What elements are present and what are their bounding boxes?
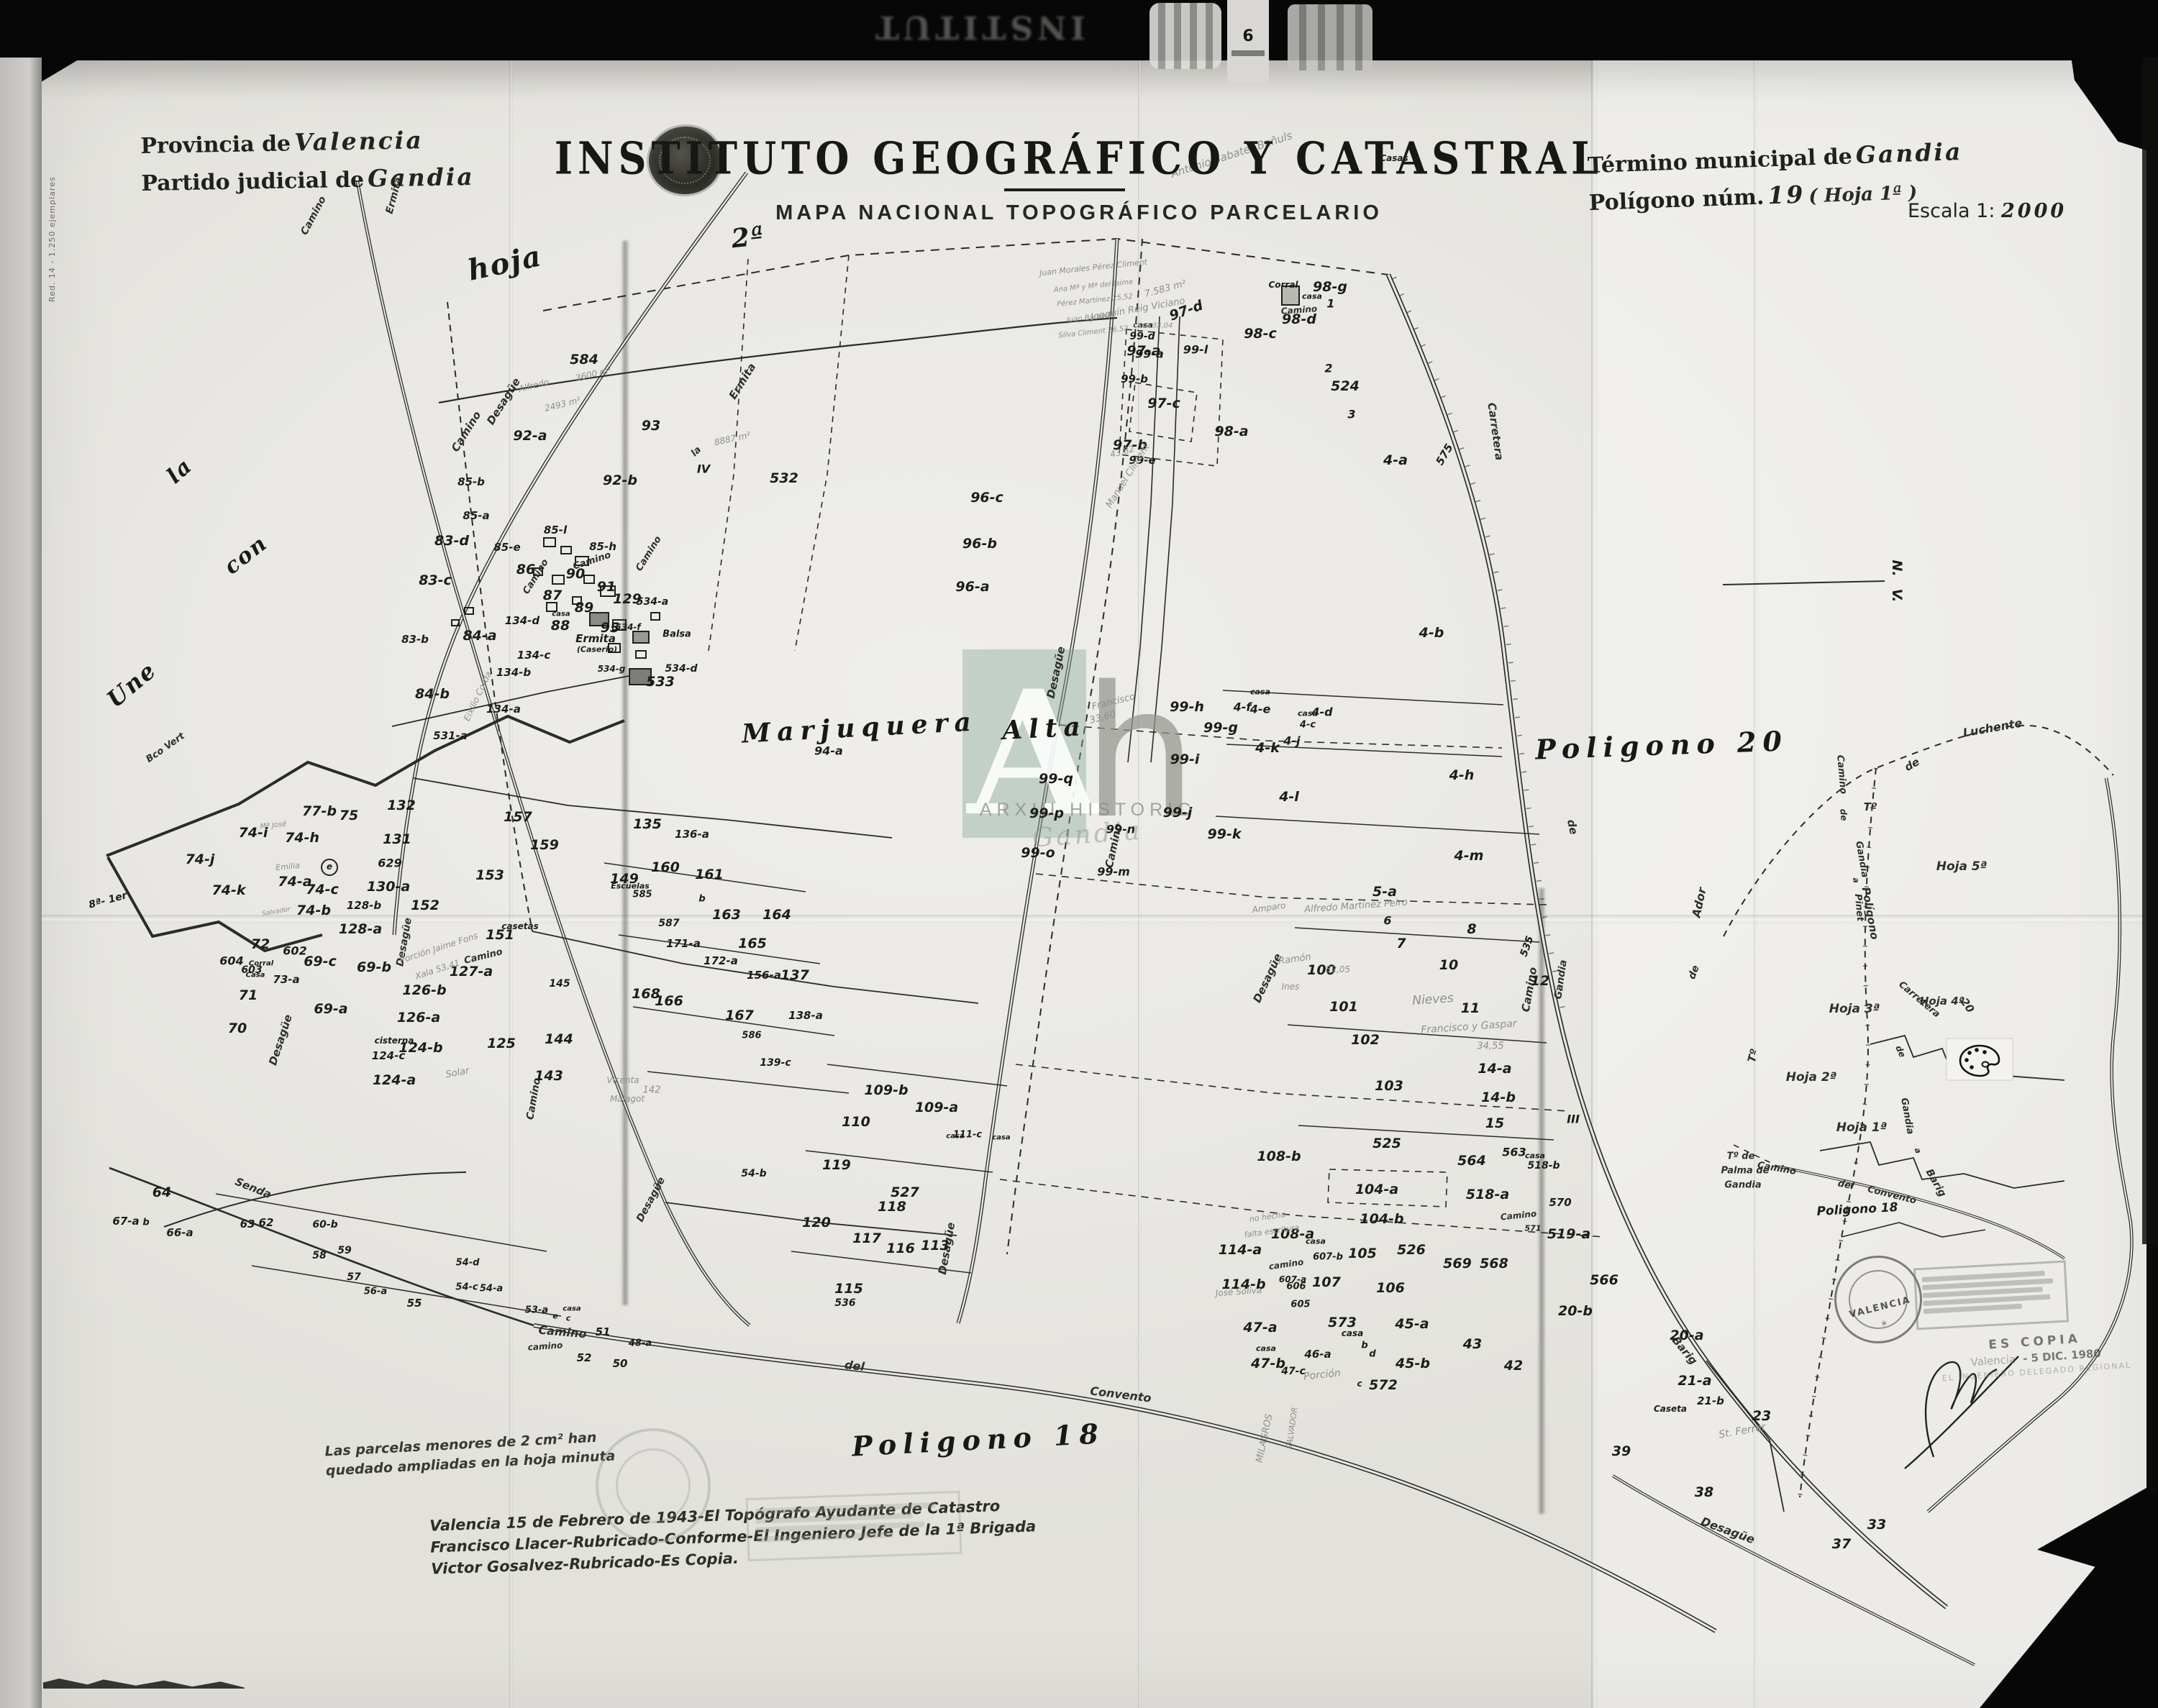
map-label: e xyxy=(321,859,338,876)
map-label: 4-c xyxy=(1300,720,1316,731)
map-label-layer: hoja2ªlaconUne8ª- 1erMarjuqueraAltaPolig… xyxy=(0,0,2158,1708)
map-label: 6 xyxy=(1383,914,1391,928)
map-label: Hoja 1ª xyxy=(1836,1120,1888,1135)
map-label: 572 xyxy=(1369,1377,1398,1393)
map-label: 84-b xyxy=(415,686,450,702)
map-label: 51 xyxy=(596,1325,611,1338)
map-label: 54-b xyxy=(741,1168,766,1179)
map-label: 57 xyxy=(347,1271,360,1283)
map-label: 4-k xyxy=(1255,740,1280,756)
map-label: 43 xyxy=(1463,1336,1482,1352)
map-label: 109-a xyxy=(915,1100,958,1115)
map-label: 4-m xyxy=(1454,848,1484,864)
map-label: 125 xyxy=(487,1036,516,1051)
map-label: 71 xyxy=(239,987,258,1003)
map-label: 138-a xyxy=(788,1009,823,1022)
registry-rect-stamp xyxy=(1913,1261,2069,1330)
map-label: casetas xyxy=(501,921,538,931)
map-label: 8 xyxy=(1467,921,1476,937)
map-label: Marjuquera xyxy=(741,706,978,749)
map-label: 136-a xyxy=(675,828,709,841)
map-label: N. xyxy=(1889,560,1905,576)
map-label: 564 xyxy=(1457,1153,1486,1169)
map-label: 37 xyxy=(1832,1536,1851,1552)
map-label: 84-a xyxy=(463,628,496,644)
map-label: 129 xyxy=(613,591,642,607)
map-label: 575 xyxy=(1433,442,1455,467)
map-label: Poligono 20 xyxy=(1534,724,1788,765)
map-label: 72 xyxy=(251,936,270,952)
map-label: 70 xyxy=(228,1020,247,1036)
map-label: 570 xyxy=(1549,1196,1571,1209)
map-label: 99-j xyxy=(1163,805,1193,821)
map-label: 519-a xyxy=(1547,1226,1590,1242)
map-label: 128-b xyxy=(347,899,381,912)
faint-circular-stamp xyxy=(596,1428,711,1543)
map-label: 171-a xyxy=(666,937,701,950)
map-label: 126-b xyxy=(402,982,446,998)
map-label: Luchente xyxy=(1962,716,2023,739)
map-label: Mª José xyxy=(260,821,287,831)
map-label: 153 xyxy=(475,867,504,883)
map-label: Camino xyxy=(538,1323,587,1341)
map-label: casa xyxy=(1302,292,1322,301)
map-label: 518-a xyxy=(1466,1187,1509,1202)
map-label: Senda xyxy=(233,1175,273,1201)
map-label: Porción xyxy=(1303,1367,1341,1382)
map-label: 8887 m² xyxy=(714,430,752,447)
map-label: 54-d xyxy=(456,1258,480,1269)
map-label: 47-b xyxy=(1251,1356,1285,1371)
map-label: III xyxy=(1567,1113,1580,1126)
sheet-note: ( Hoja 1ª ) xyxy=(1808,182,1918,207)
map-label: 161 xyxy=(695,867,724,882)
map-label: 98-a xyxy=(1214,424,1248,439)
map-label: 45-a xyxy=(1395,1316,1429,1332)
map-label: V. xyxy=(1889,589,1905,603)
map-label: 83-c xyxy=(419,572,452,588)
map-label: 77-b xyxy=(302,803,337,819)
map-label: 527 xyxy=(891,1184,919,1200)
map-label: 143 xyxy=(534,1068,563,1084)
map-label: 11 xyxy=(1461,1000,1480,1016)
map-label: 33 xyxy=(1867,1517,1886,1533)
map-label: 5-a xyxy=(1372,884,1397,900)
map-label: camino xyxy=(527,1340,563,1352)
municipality-value: Gandia xyxy=(1855,137,1963,169)
map-label: 134-c xyxy=(517,649,550,662)
polygon-label: Polígono núm. xyxy=(1588,185,1765,216)
map-label: 20-a xyxy=(1670,1328,1703,1343)
map-label: 99-h xyxy=(1170,699,1204,715)
map-label: MILAGROS xyxy=(1255,1413,1275,1463)
map-label: 74-j xyxy=(186,851,215,867)
map-label: Barig xyxy=(1923,1167,1949,1199)
map-label: Desagüe xyxy=(1044,645,1068,699)
map-label: con xyxy=(219,531,273,580)
map-label: 139-c xyxy=(760,1057,791,1069)
map-label: Desagüe xyxy=(266,1013,295,1067)
map-label: 585 xyxy=(632,890,652,900)
map-label: 7 xyxy=(1396,936,1406,951)
map-label: 566 xyxy=(1590,1272,1618,1288)
map-label: 58 xyxy=(312,1250,326,1261)
map-label: casa xyxy=(1342,1328,1363,1338)
map-label: 69-a xyxy=(314,1001,347,1017)
map-label: 92-a xyxy=(513,428,547,444)
map-label: 532 xyxy=(770,470,798,486)
map-label: 74-c xyxy=(306,882,339,898)
map-label: 104-b xyxy=(1360,1211,1403,1227)
map-label: Tº xyxy=(1864,800,1877,813)
map-label: 605 xyxy=(1290,1300,1310,1310)
map-label: 94-a xyxy=(814,744,843,758)
stamp-place: Valencia xyxy=(1970,1353,2016,1369)
map-label: 115 xyxy=(834,1281,863,1297)
map-label: Gandia xyxy=(1853,840,1870,878)
scan-edge-right xyxy=(2142,58,2158,1244)
map-label: Carretera xyxy=(1485,402,1506,462)
map-label: 54-a xyxy=(480,1284,503,1294)
map-label: 75 xyxy=(340,808,358,823)
map-label: Silva Climent 26,52 xyxy=(1058,324,1129,339)
map-label: Nieves xyxy=(1412,991,1454,1008)
map-label: Ana Mª y Mª del Jaime xyxy=(1053,278,1133,295)
map-label: 4-e xyxy=(1250,703,1271,716)
map-label: Alfredo xyxy=(517,377,550,394)
map-label: Gandia xyxy=(1898,1097,1916,1135)
map-label: 99-a xyxy=(1135,347,1164,361)
map-label: 1 xyxy=(1326,297,1334,311)
print-run-edge-note: Red. 14 - 1.250 ejemplares xyxy=(47,176,57,302)
map-label: Hoja 5ª xyxy=(1936,859,1988,874)
polygon-number: 19 xyxy=(1767,181,1806,210)
map-label: 101 xyxy=(1329,999,1358,1015)
map-label: 2ª xyxy=(730,221,767,255)
map-label: Ermita xyxy=(575,632,616,645)
map-label: 117 xyxy=(852,1230,881,1246)
map-label: 531-a xyxy=(433,729,468,742)
map-label: 55 xyxy=(407,1297,422,1310)
map-label: 606 xyxy=(1286,1282,1306,1292)
film-counter-blob xyxy=(1149,3,1221,69)
district-label: Partido judicial de xyxy=(141,168,364,196)
map-label: 89 xyxy=(575,600,593,616)
map-label: Alta xyxy=(1001,711,1088,746)
map-label: del xyxy=(844,1358,865,1374)
map-label: c xyxy=(566,1314,571,1323)
map-label: 64 xyxy=(152,1184,171,1200)
map-label: 93 xyxy=(642,418,660,434)
map-label: Hoja 3ª xyxy=(1829,1002,1880,1016)
province-label: Provincia de xyxy=(140,131,291,159)
map-label: Vicenta xyxy=(606,1075,639,1085)
map-label: 47-c xyxy=(1281,1366,1306,1377)
map-label: 66-a xyxy=(166,1226,193,1239)
map-label: 74-h xyxy=(285,830,319,846)
scale-label: Escala 1: xyxy=(1908,200,1995,222)
map-label: 4-j xyxy=(1283,734,1300,748)
map-label: 99-q xyxy=(1039,771,1073,787)
map-label: d xyxy=(1369,1349,1375,1360)
map-label: 107 xyxy=(1312,1274,1341,1290)
map-label: 587 xyxy=(658,918,679,929)
map-label: 54-c xyxy=(455,1282,478,1293)
map-series-subtitle: MAPA NACIONAL TOPOGRÁFICO PARCELARIO xyxy=(775,201,1383,225)
map-label: no hecha xyxy=(1249,1210,1286,1224)
map-label: 2493 m² xyxy=(544,395,582,414)
map-label: 96-c xyxy=(970,490,1003,506)
map-label: Desagüe xyxy=(484,375,523,427)
map-label: Gandia xyxy=(1552,959,1570,1000)
film-counter-blob xyxy=(1288,4,1372,70)
map-label: 74-b xyxy=(296,903,331,918)
map-label: a xyxy=(1913,1146,1923,1154)
map-label: 12 xyxy=(1531,973,1549,989)
map-label: Pinet xyxy=(1852,893,1865,921)
map-label: 34,55 xyxy=(1477,1041,1503,1052)
map-label: 2 xyxy=(1324,362,1332,375)
map-label: 533 xyxy=(646,674,675,690)
map-label: Emilia xyxy=(276,861,301,872)
map-label: 119 xyxy=(822,1157,851,1173)
map-label: de xyxy=(1893,1043,1908,1059)
map-label: Gandia xyxy=(1724,1180,1761,1191)
map-label: 99-k xyxy=(1208,826,1242,842)
map-label: 563 xyxy=(1502,1146,1526,1159)
map-label: 96-b xyxy=(962,536,997,552)
map-label: 110 xyxy=(842,1114,870,1130)
map-label: 118 xyxy=(878,1199,906,1215)
map-label: e xyxy=(552,1312,557,1321)
map-label: de xyxy=(1902,755,1921,774)
map-label: 103 xyxy=(1375,1078,1403,1094)
map-label: Ermita xyxy=(727,361,759,402)
map-label: la xyxy=(162,453,197,488)
map-label: 164 xyxy=(762,907,791,923)
map-label: casa xyxy=(1298,709,1318,718)
map-label: Juan Morales Pérez Climent xyxy=(1039,257,1147,278)
map-label: 99-b xyxy=(1121,373,1148,385)
municipality-label: Término municipal de xyxy=(1587,144,1852,178)
map-label: 3 xyxy=(1347,408,1355,421)
map-label: 4-f xyxy=(1234,700,1252,714)
map-label: Salvador xyxy=(262,906,291,918)
map-label: 38 xyxy=(1695,1484,1713,1500)
province-block: Provincia de Valencia Partido judicial d… xyxy=(140,125,475,206)
map-label: Francisco y Gaspar xyxy=(1421,1018,1517,1036)
map-label: Malagot xyxy=(610,1094,645,1104)
scanned-cadastral-map: A h ARXIU HISTORIC Gandia hoja2ªlaconUne… xyxy=(0,0,2158,1708)
map-label: 47-a xyxy=(1243,1320,1277,1335)
map-label: 526 xyxy=(1397,1242,1426,1258)
map-label: casa xyxy=(992,1134,1010,1142)
map-label: 69-b xyxy=(357,959,391,975)
map-label: 134-d xyxy=(505,614,539,627)
map-label: 536 xyxy=(834,1297,855,1309)
map-label: 134-b xyxy=(496,666,531,679)
map-label: 32,05 xyxy=(1326,964,1350,974)
film-frame-number: 6 xyxy=(1227,27,1269,45)
map-label: 98-d xyxy=(1282,311,1316,327)
map-label: Tº xyxy=(1745,1048,1761,1064)
map-label: casa xyxy=(563,1305,581,1313)
map-label: (Caserio) xyxy=(577,645,617,654)
map-label: hoja xyxy=(465,239,545,288)
map-label: 108-b xyxy=(1257,1148,1301,1164)
map-label: 20-b xyxy=(1558,1303,1593,1319)
map-label: camino xyxy=(1268,1257,1304,1272)
map-label: casa xyxy=(552,611,570,618)
map-label: Convento xyxy=(1089,1384,1152,1405)
map-label: 69-c xyxy=(304,954,337,969)
map-label: 172-a xyxy=(704,954,738,967)
scan-edge-left xyxy=(0,58,42,1708)
map-label: José Soliva xyxy=(1215,1285,1262,1298)
map-label: 124-a xyxy=(373,1072,416,1088)
map-label: 8ª- 1er xyxy=(88,890,129,911)
map-label: cisterna xyxy=(375,1036,414,1046)
map-label: 120 xyxy=(802,1215,831,1230)
map-label: 109-b xyxy=(864,1082,908,1098)
map-label: casa xyxy=(1256,1344,1276,1353)
map-label: 126-a xyxy=(397,1010,440,1026)
map-label: 534-d xyxy=(665,663,697,675)
map-label: 39 xyxy=(1612,1443,1631,1459)
map-label: 4-h xyxy=(1449,767,1475,783)
stamp-date: - 5 DIC. 1980 xyxy=(2023,1347,2102,1366)
map-label: 98-c xyxy=(1244,326,1277,342)
map-label: 86 xyxy=(516,562,535,577)
map-label: 584 xyxy=(570,352,598,367)
map-label: 56-a xyxy=(364,1287,387,1297)
map-label: 74-k xyxy=(212,882,246,898)
map-label: del xyxy=(1836,1178,1854,1192)
map-label: casa 33,04 xyxy=(1134,322,1173,330)
map-label: 97-c xyxy=(1147,396,1180,411)
map-label: 144 xyxy=(545,1031,573,1047)
map-label: 42 xyxy=(1504,1358,1523,1374)
map-label: Bco Vert xyxy=(144,731,186,765)
map-label: St. Ferrer xyxy=(1718,1421,1767,1440)
map-label: 571 xyxy=(1525,1224,1542,1233)
map-label: 14-b xyxy=(1481,1090,1516,1105)
map-label: 124-c xyxy=(372,1049,405,1062)
map-label: 4-a xyxy=(1383,452,1408,468)
map-label: 4-b xyxy=(1419,625,1444,641)
map-label: 88 xyxy=(551,618,570,634)
map-label: 142 xyxy=(643,1085,661,1096)
map-label: 106 xyxy=(1376,1280,1405,1296)
map-label: 568 xyxy=(1480,1256,1508,1271)
map-label: Camino xyxy=(634,534,664,573)
map-label: Corral xyxy=(1268,280,1298,290)
map-label: 21-a xyxy=(1677,1373,1711,1389)
map-label: 99-l xyxy=(1183,343,1208,357)
map-label: Camino xyxy=(449,409,484,455)
district-value: Gandia xyxy=(368,163,475,193)
map-label: Alfredo Martinez Peiro xyxy=(1304,897,1408,915)
map-label: 604 xyxy=(219,954,243,968)
map-label: Poligono 18 xyxy=(851,1417,1106,1462)
map-label: de xyxy=(1838,808,1849,821)
map-label: 21-b xyxy=(1697,1394,1724,1407)
map-label: 59 xyxy=(337,1245,351,1256)
map-label: 116 xyxy=(886,1241,915,1256)
map-label: 99-o xyxy=(1021,845,1055,861)
map-label: 67-a xyxy=(112,1215,139,1228)
map-label: 525 xyxy=(1372,1136,1401,1151)
map-label: 99-n xyxy=(1106,823,1135,836)
map-label: 85-a xyxy=(463,509,489,522)
map-label: Une xyxy=(101,657,162,713)
map-label: 99-g xyxy=(1203,720,1238,736)
map-label: SALVADOR xyxy=(1284,1407,1299,1450)
map-label: 50 xyxy=(613,1357,628,1370)
map-label: 85-e xyxy=(493,541,520,554)
map-label: 83-b xyxy=(401,633,429,646)
map-label: 134-a xyxy=(486,703,521,716)
map-label: Escuelas xyxy=(611,882,650,891)
map-label: 83-d xyxy=(434,533,469,549)
map-label: Solar xyxy=(445,1066,470,1081)
map-label: Ines xyxy=(1282,982,1300,992)
map-label: 102 xyxy=(1351,1032,1380,1048)
scale-block: Escala 1: 2000 xyxy=(1908,200,2067,222)
map-label: b xyxy=(698,894,705,905)
map-label: 569 xyxy=(1443,1256,1472,1271)
map-label: 10 xyxy=(1439,957,1458,973)
map-label: b xyxy=(142,1218,149,1228)
map-label: Ador xyxy=(1689,886,1708,918)
map-label: Casa xyxy=(246,972,265,979)
map-label: 131 xyxy=(383,831,411,847)
map-label: 99-d xyxy=(1129,331,1155,342)
map-label: 52 xyxy=(577,1351,592,1364)
map-label: 168 xyxy=(632,986,660,1002)
map-label: 165 xyxy=(738,936,767,951)
map-label: casa xyxy=(1306,1237,1326,1246)
map-label: 48-a xyxy=(629,1338,652,1349)
map-label: 96-a xyxy=(955,579,989,595)
map-label: 128-a xyxy=(339,921,382,937)
map-label: Hoja 2ª xyxy=(1786,1070,1837,1084)
map-label: 160 xyxy=(651,859,680,875)
map-label: 534-g xyxy=(598,664,626,674)
map-label: 99-p xyxy=(1029,805,1064,821)
map-label: c xyxy=(1357,1379,1362,1389)
map-label: 63 xyxy=(240,1218,255,1230)
map-label: 99-i xyxy=(1170,752,1200,767)
map-label: 90 xyxy=(566,566,585,582)
scale-value: 2000 xyxy=(2001,200,2067,222)
map-label: 85-l xyxy=(544,524,567,536)
title-underline xyxy=(1004,188,1125,191)
map-label: 167 xyxy=(725,1008,754,1023)
map-label: Camino xyxy=(1834,754,1849,795)
map-label: 73-a xyxy=(273,973,299,986)
map-label: 15 xyxy=(1485,1115,1504,1131)
map-label: 159 xyxy=(530,837,559,853)
map-label: Caseta xyxy=(1654,1404,1687,1414)
map-label: de xyxy=(1686,964,1702,981)
map-label: Camino xyxy=(1500,1208,1537,1222)
map-label: 607-b xyxy=(1313,1252,1343,1263)
map-label: a xyxy=(1851,877,1861,884)
map-label: Poligono 18 xyxy=(1816,1200,1898,1219)
map-label: 157 xyxy=(504,809,532,825)
map-label: casa xyxy=(1525,1151,1545,1161)
